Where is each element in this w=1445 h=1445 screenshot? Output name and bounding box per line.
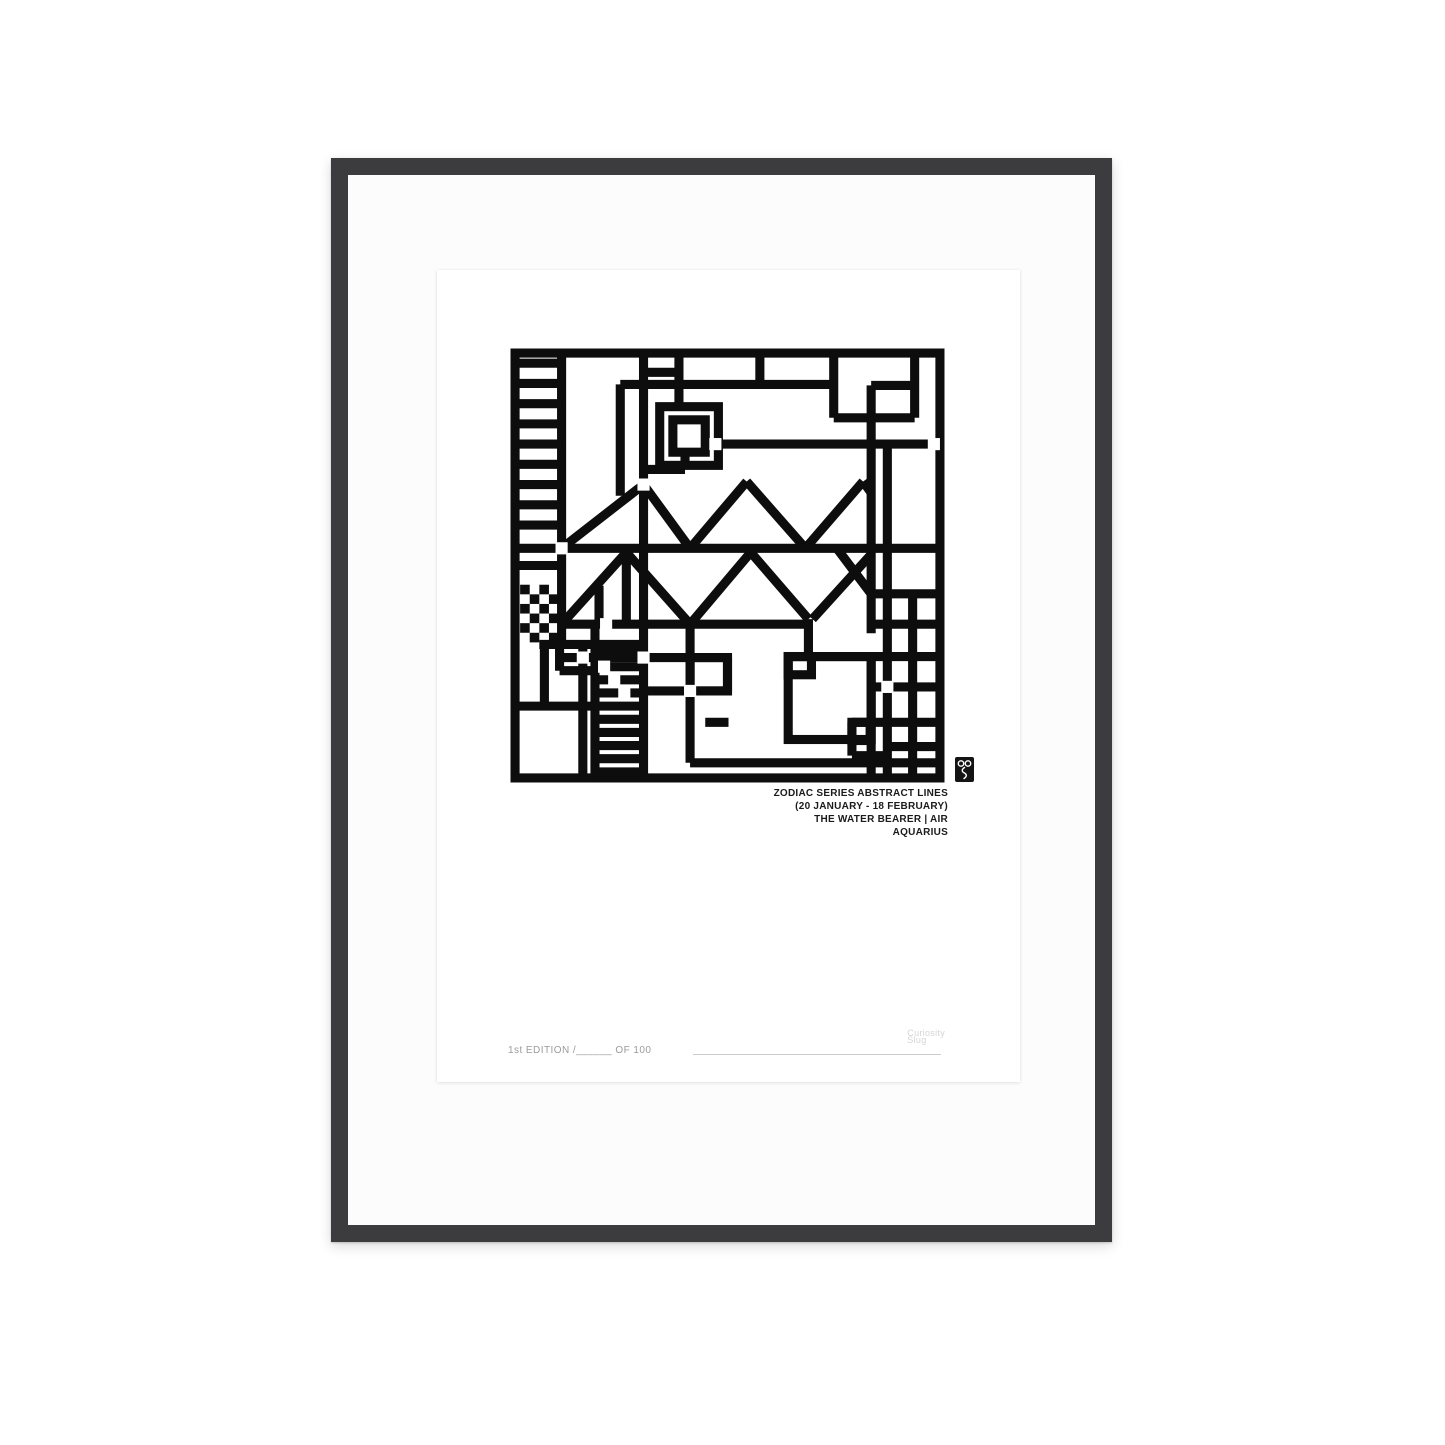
- caption-line-sign: AQUARIUS: [774, 826, 948, 839]
- artwork-line-composition: [510, 348, 945, 783]
- caption-line-title: ZODIAC SERIES ABSTRACT LINES: [774, 787, 948, 800]
- print-paper: ZODIAC SERIES ABSTRACT LINES (20 JANUARY…: [437, 270, 1020, 1082]
- caption-line-symbol: THE WATER BEARER | AIR: [774, 813, 948, 826]
- brand-watermark: Curiosity Slug: [907, 1030, 945, 1044]
- caption-line-dates: (20 JANUARY - 18 FEBRUARY): [774, 800, 948, 813]
- caption-block: ZODIAC SERIES ABSTRACT LINES (20 JANUARY…: [774, 787, 948, 839]
- signature-line: [693, 1054, 941, 1055]
- picture-frame: ZODIAC SERIES ABSTRACT LINES (20 JANUARY…: [331, 158, 1112, 1242]
- curiosity-slug-logo-icon: [955, 757, 974, 782]
- edition-label: 1st EDITION /______ OF 100: [508, 1045, 651, 1056]
- watermark-line-2: Slug: [907, 1037, 945, 1044]
- page-background: { "frame": { "color": "#3c3c3e", "mat_co…: [0, 0, 1445, 1445]
- mat: ZODIAC SERIES ABSTRACT LINES (20 JANUARY…: [348, 175, 1095, 1225]
